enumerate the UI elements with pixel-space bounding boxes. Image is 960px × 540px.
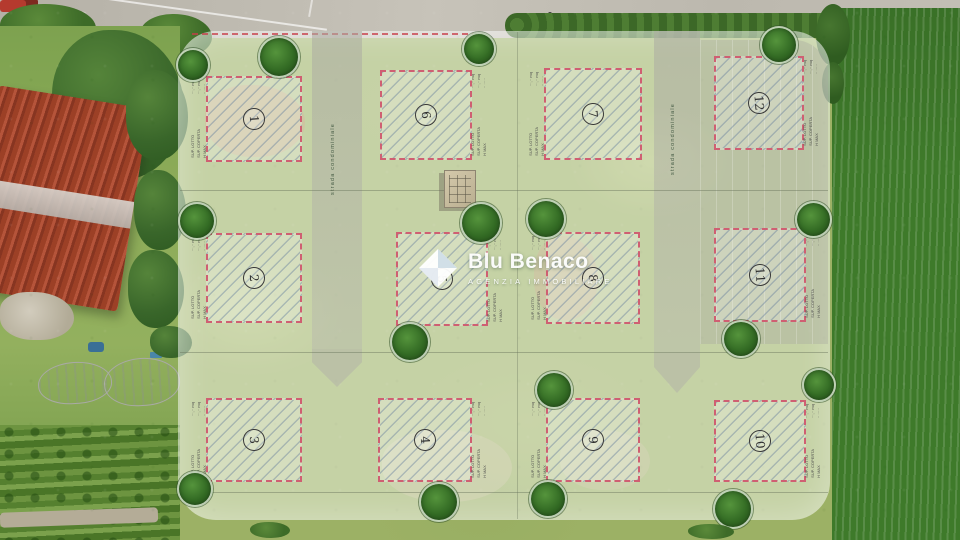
- watermark-title: Blu Benaco: [468, 250, 613, 274]
- plot-number: 3: [242, 428, 265, 451]
- plot-area-values: ···,·· mq ···,·· mq ·· ·····: [528, 72, 546, 86]
- blu-benaco-logo-icon: [418, 248, 458, 288]
- plot-area-labels: SUP. LOTTO SUP. COPERTA H MAX: [486, 293, 504, 322]
- plot-11: 11 ···,·· mq ···,·· mq ·· ····· SUP. LOT…: [714, 228, 806, 322]
- barn-roof-band: [0, 179, 134, 229]
- plot-10: 10 ···,·· mq ···,·· mq ·· ····· SUP. LOT…: [714, 400, 806, 482]
- tree-icon: [760, 26, 798, 64]
- plot-area-labels: SUP. LOTTO SUP. COPERTA H MAX: [470, 127, 488, 156]
- tree-grove: [128, 250, 184, 328]
- tree-icon: [529, 480, 567, 518]
- plot-area-labels: SUP. LOTTO SUP. COPERTA H MAX: [802, 117, 820, 146]
- road-label: strada condominiale: [670, 80, 676, 175]
- watermark: Blu Benaco AGENZIA IMMOBILIARE: [418, 248, 613, 288]
- plot-area-labels: SUP. LOTTO SUP. COPERTA H MAX: [530, 291, 548, 320]
- tree-icon: [258, 36, 300, 78]
- tree-icon: [795, 201, 832, 238]
- tree-icon: [419, 482, 459, 522]
- plot-number: 11: [748, 263, 771, 286]
- plot-area-values: ···,·· mq ···,·· mq ·· ·····: [190, 402, 208, 416]
- plot-number: 7: [581, 102, 604, 125]
- tree-icon: [535, 371, 573, 409]
- plot-1: 1 ···,·· mq ···,·· mq ·· ····· SUP. LOTT…: [206, 76, 302, 162]
- crop-field: [832, 8, 960, 540]
- plot-area-labels: SUP. LOTTO SUP. COPERTA H MAX: [190, 129, 208, 158]
- tree-icon: [177, 471, 213, 507]
- plot-2: 2 ···,·· mq ···,·· mq ·· ····· SUP. LOTT…: [206, 233, 302, 323]
- tree-icon: [178, 202, 216, 240]
- plot-number: 9: [581, 428, 604, 451]
- tree-icon: [802, 368, 836, 402]
- tree-icon: [462, 32, 496, 66]
- plot-area-values: ···,·· mq ···,·· mq ·· ·····: [802, 60, 820, 74]
- plot-area-labels: SUP. LOTTO SUP. COPERTA H MAX: [530, 449, 548, 478]
- plot-9: 9 ···,·· mq ···,·· mq ·· ····· SUP. LOTT…: [546, 398, 640, 482]
- plot-area-values: ···,·· mq ···,·· mq ·· ·····: [190, 80, 208, 94]
- plot-number: 12: [747, 91, 770, 114]
- plot-number: 1: [242, 107, 265, 130]
- plot-area-labels: SUP. LOTTO SUP. COPERTA H MAX: [804, 449, 822, 478]
- plot-number: 4: [413, 428, 436, 451]
- aerial-site-plan: strada condominiale strada condominiale …: [0, 0, 960, 540]
- blue-tarp: [88, 342, 104, 352]
- plot-3: 3 ···,·· mq ···,·· mq ·· ····· SUP. LOTT…: [206, 398, 302, 482]
- watermark-subtitle: AGENZIA IMMOBILIARE: [468, 277, 613, 286]
- plot-area-values: ···,·· mq ···,·· mq ·· ·····: [470, 74, 488, 88]
- tree-icon: [460, 202, 502, 244]
- tree-icon: [526, 199, 566, 239]
- shed-windows: [449, 175, 471, 203]
- plot-number: 10: [748, 429, 771, 452]
- plot-area-labels: SUP. LOTTO SUP. COPERTA H MAX: [804, 289, 822, 318]
- gravel-patch: [0, 292, 74, 340]
- shed: [444, 170, 476, 208]
- plot-number: 2: [242, 266, 265, 289]
- bush: [250, 522, 290, 538]
- plot-area-labels: SUP. LOTTO SUP. COPERTA H MAX: [470, 449, 488, 478]
- tree-icon: [390, 322, 430, 362]
- plot-number: 6: [414, 103, 437, 126]
- road-label: strada condominiale: [330, 100, 336, 195]
- tree-icon: [722, 320, 760, 358]
- plot-4: 4 ···,·· mq ···,·· mq ·· ····· SUP. LOTT…: [378, 398, 472, 482]
- plot-7: 7 ···,·· mq ···,·· mq ·· ····· SUP. LOTT…: [544, 68, 642, 160]
- plot-area-labels: SUP. LOTTO SUP. COPERTA H MAX: [528, 127, 546, 156]
- plot-area-labels: SUP. LOTTO SUP. COPERTA H MAX: [190, 290, 208, 319]
- tree-icon: [713, 489, 753, 529]
- tree-icon: [176, 48, 210, 82]
- bush: [688, 524, 734, 539]
- plot-12: 12 ···,·· mq ···,·· mq ·· ····· SUP. LOT…: [714, 56, 804, 150]
- parcel-line: [180, 190, 828, 191]
- plot-area-values: ···,·· mq ···,·· mq ·· ·····: [804, 404, 822, 418]
- plot-area-values: ···,·· mq ···,·· mq ·· ·····: [470, 402, 488, 416]
- plot-6: 6 ···,·· mq ···,·· mq ·· ····· SUP. LOTT…: [380, 70, 472, 160]
- access-road: [654, 31, 700, 353]
